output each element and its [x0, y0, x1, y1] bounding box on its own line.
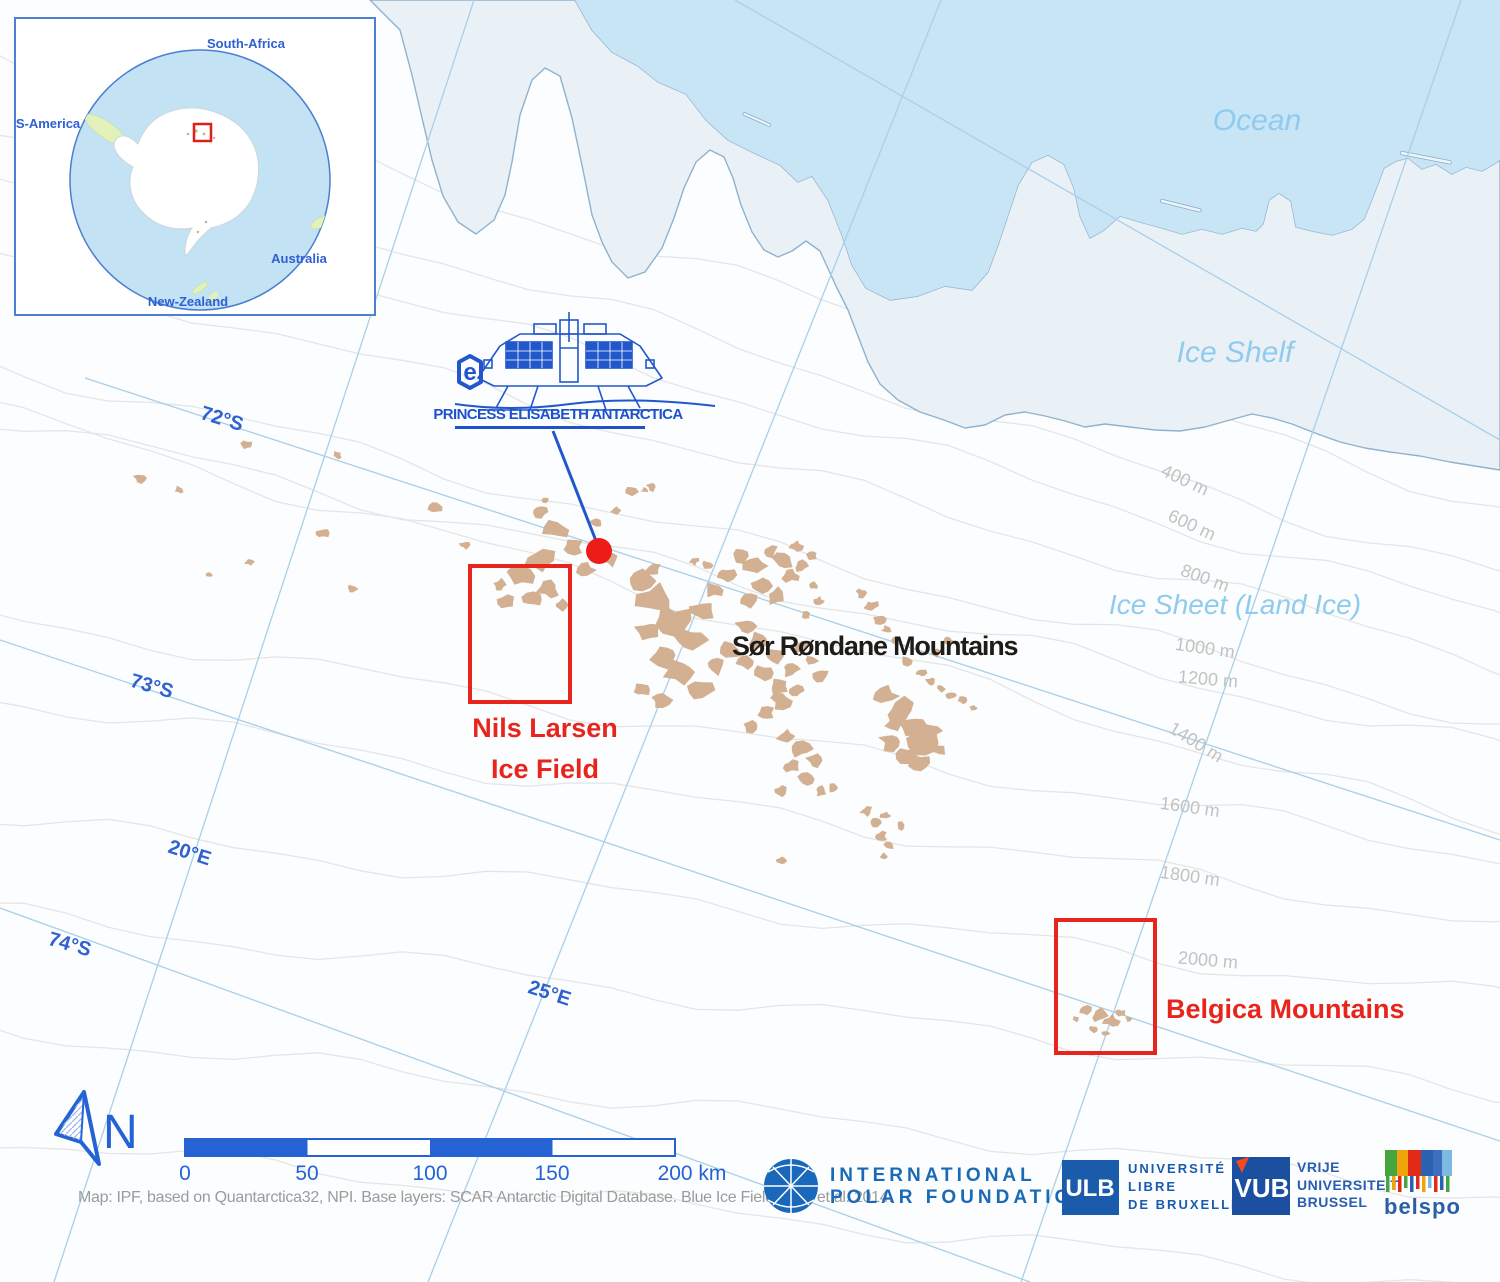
scale-tick-0: 0: [179, 1162, 191, 1185]
svg-text:e: e: [463, 359, 476, 386]
ulb-line2: LIBRE: [1128, 1179, 1177, 1194]
vub-line1: VRIJE: [1297, 1159, 1340, 1175]
ulb-line1: UNIVERSITÉ: [1128, 1161, 1226, 1176]
label-ocean: Ocean: [1213, 104, 1301, 137]
ipf-name-line2: POLAR FOUNDATION: [830, 1187, 1091, 1208]
label-nils-larsen-line2: Ice Field: [491, 754, 599, 784]
inset-label-south-africa: South-Africa: [207, 36, 286, 51]
inset-label-new-zealand: New-Zealand: [148, 294, 228, 309]
label-ice-shelf: Ice Shelf: [1177, 336, 1296, 369]
scale-tick-150: 150: [534, 1162, 569, 1185]
scale-tick-50: 50: [295, 1162, 318, 1185]
vub-line3: BRUSSEL: [1297, 1194, 1367, 1210]
scale-tick-200km: 200 km: [658, 1162, 727, 1185]
inset-map: South-Africa S-America Australia New-Zea…: [15, 18, 375, 315]
ipf-globe-icon: [764, 1159, 818, 1213]
label-belgica-mountains: Belgica Mountains: [1166, 994, 1405, 1024]
ulb-mark: ULB: [1065, 1175, 1114, 1202]
belspo-bars-icon: [1385, 1150, 1452, 1192]
station-label: PRINCESS ELISABETH ANTARCTICA: [433, 406, 683, 423]
scale-tick-100: 100: [412, 1162, 447, 1185]
north-label: N: [103, 1106, 138, 1159]
inset-label-australia: Australia: [271, 251, 327, 266]
vub-mark: VUB: [1235, 1173, 1290, 1203]
belspo-label: belspo: [1384, 1194, 1461, 1219]
mountain-blob: [772, 679, 788, 695]
vub-line2: UNIVERSITEIT: [1297, 1177, 1399, 1193]
map-figure: 72°S 73°S 74°S 20°E 25°E Ocean Ice Shelf…: [0, 0, 1500, 1282]
inset-label-s-america: S-America: [16, 116, 81, 131]
map-canvas: 72°S 73°S 74°S 20°E 25°E Ocean Ice Shelf…: [0, 0, 1500, 1282]
ipf-name-line1: INTERNATIONAL: [830, 1165, 1036, 1186]
label-ice-sheet: Ice Sheet (Land Ice): [1109, 589, 1361, 620]
label-sor-rondane-mountains: Sør Røndane Mountains: [732, 631, 1017, 661]
station-label-underline: [455, 426, 645, 429]
label-nils-larsen-line1: Nils Larsen: [472, 713, 618, 743]
mountain-blob: [634, 684, 650, 696]
station-location-dot: [586, 538, 612, 564]
